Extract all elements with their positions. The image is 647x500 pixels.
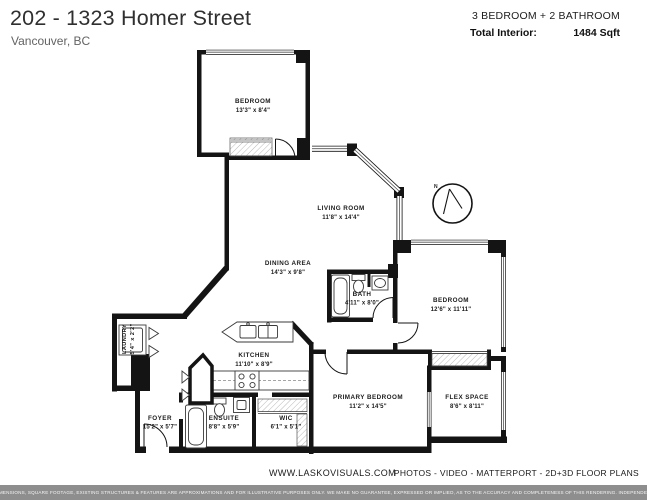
bathtub [332,275,350,317]
website-url: WWW.LASKOVISUALS.COM [269,468,396,478]
room-dims-bedroom-right: 12'6" x 11'11" [431,307,472,313]
room-label-living-room: LIVING ROOM [317,205,364,212]
room-dims-flex-space: 8'6" x 8'11" [450,404,484,410]
closet-right-bedroom [432,352,487,366]
room-label-bedroom-right: BEDROOM [433,297,469,304]
room-dims-ensuite: 8'8" x 5'9" [209,425,240,431]
services-list: PHOTOS - VIDEO - MATTERPORT - 2D+3D FLOO… [394,468,639,478]
room-dims-bath: 4'11" x 8'0" [345,301,379,307]
disclaimer-text: FLOOR PLAN MEASUREMENTS, DIMENSIONS, SQU… [0,490,647,495]
room-label-foyer: FOYER [148,415,172,422]
room-label-dining-area: DINING AREA [265,260,311,267]
bathtub-ensuite [186,405,207,448]
pantry-column [182,355,212,403]
room-label-flex-space: FLEX SPACE [445,394,489,401]
room-label-bath: BATH [353,291,372,298]
door-right-bedroom [398,323,418,343]
window-living-diagonal [355,150,399,191]
room-dims-foyer: 15'2" x 5'7" [143,425,177,431]
door-primary-bedroom [325,352,347,374]
kitchen-counter-bottom [213,371,309,390]
room-dims-kitchen: 11'10" x 8'9" [235,362,273,368]
room-dims-living-room: 11'8" x 14'4" [322,215,360,221]
room-label-primary-bedroom: PRIMARY BEDROOM [333,394,403,401]
room-dims-primary-bedroom: 11'2" x 14'5" [349,404,387,410]
closet-top-bedroom [230,138,272,156]
room-label-kitchen: KITCHEN [238,352,269,359]
compass: N [433,184,472,223]
room-dims-dining-area: 14'3" x 9'8" [271,270,305,276]
sink-ensuite [234,398,250,413]
room-label-bedroom-top: BEDROOM [235,98,271,105]
closet-wic-top [258,399,307,413]
sink-bath [372,276,388,290]
room-label-laundry: LAUNDRY [122,324,128,354]
floor-plan: N BEDROOM 13'3" x 8'4" LIVING ROOM 11'8"… [0,0,647,500]
room-label-ensuite: ENSUITE [209,415,239,422]
kitchen-counter-top [222,322,293,342]
room-dims-bedroom-top: 13'3" x 8'4" [236,108,270,114]
disclaimer-bar: FLOOR PLAN MEASUREMENTS, DIMENSIONS, SQU… [0,485,647,500]
room-dims-laundry: 5'4" x 2'2" [130,323,136,354]
toilet-ensuite [213,398,226,416]
compass-north-label: N [434,184,438,190]
room-label-wic: WIC [279,415,293,422]
room-dims-wic: 6'1" x 5'1" [271,425,302,431]
